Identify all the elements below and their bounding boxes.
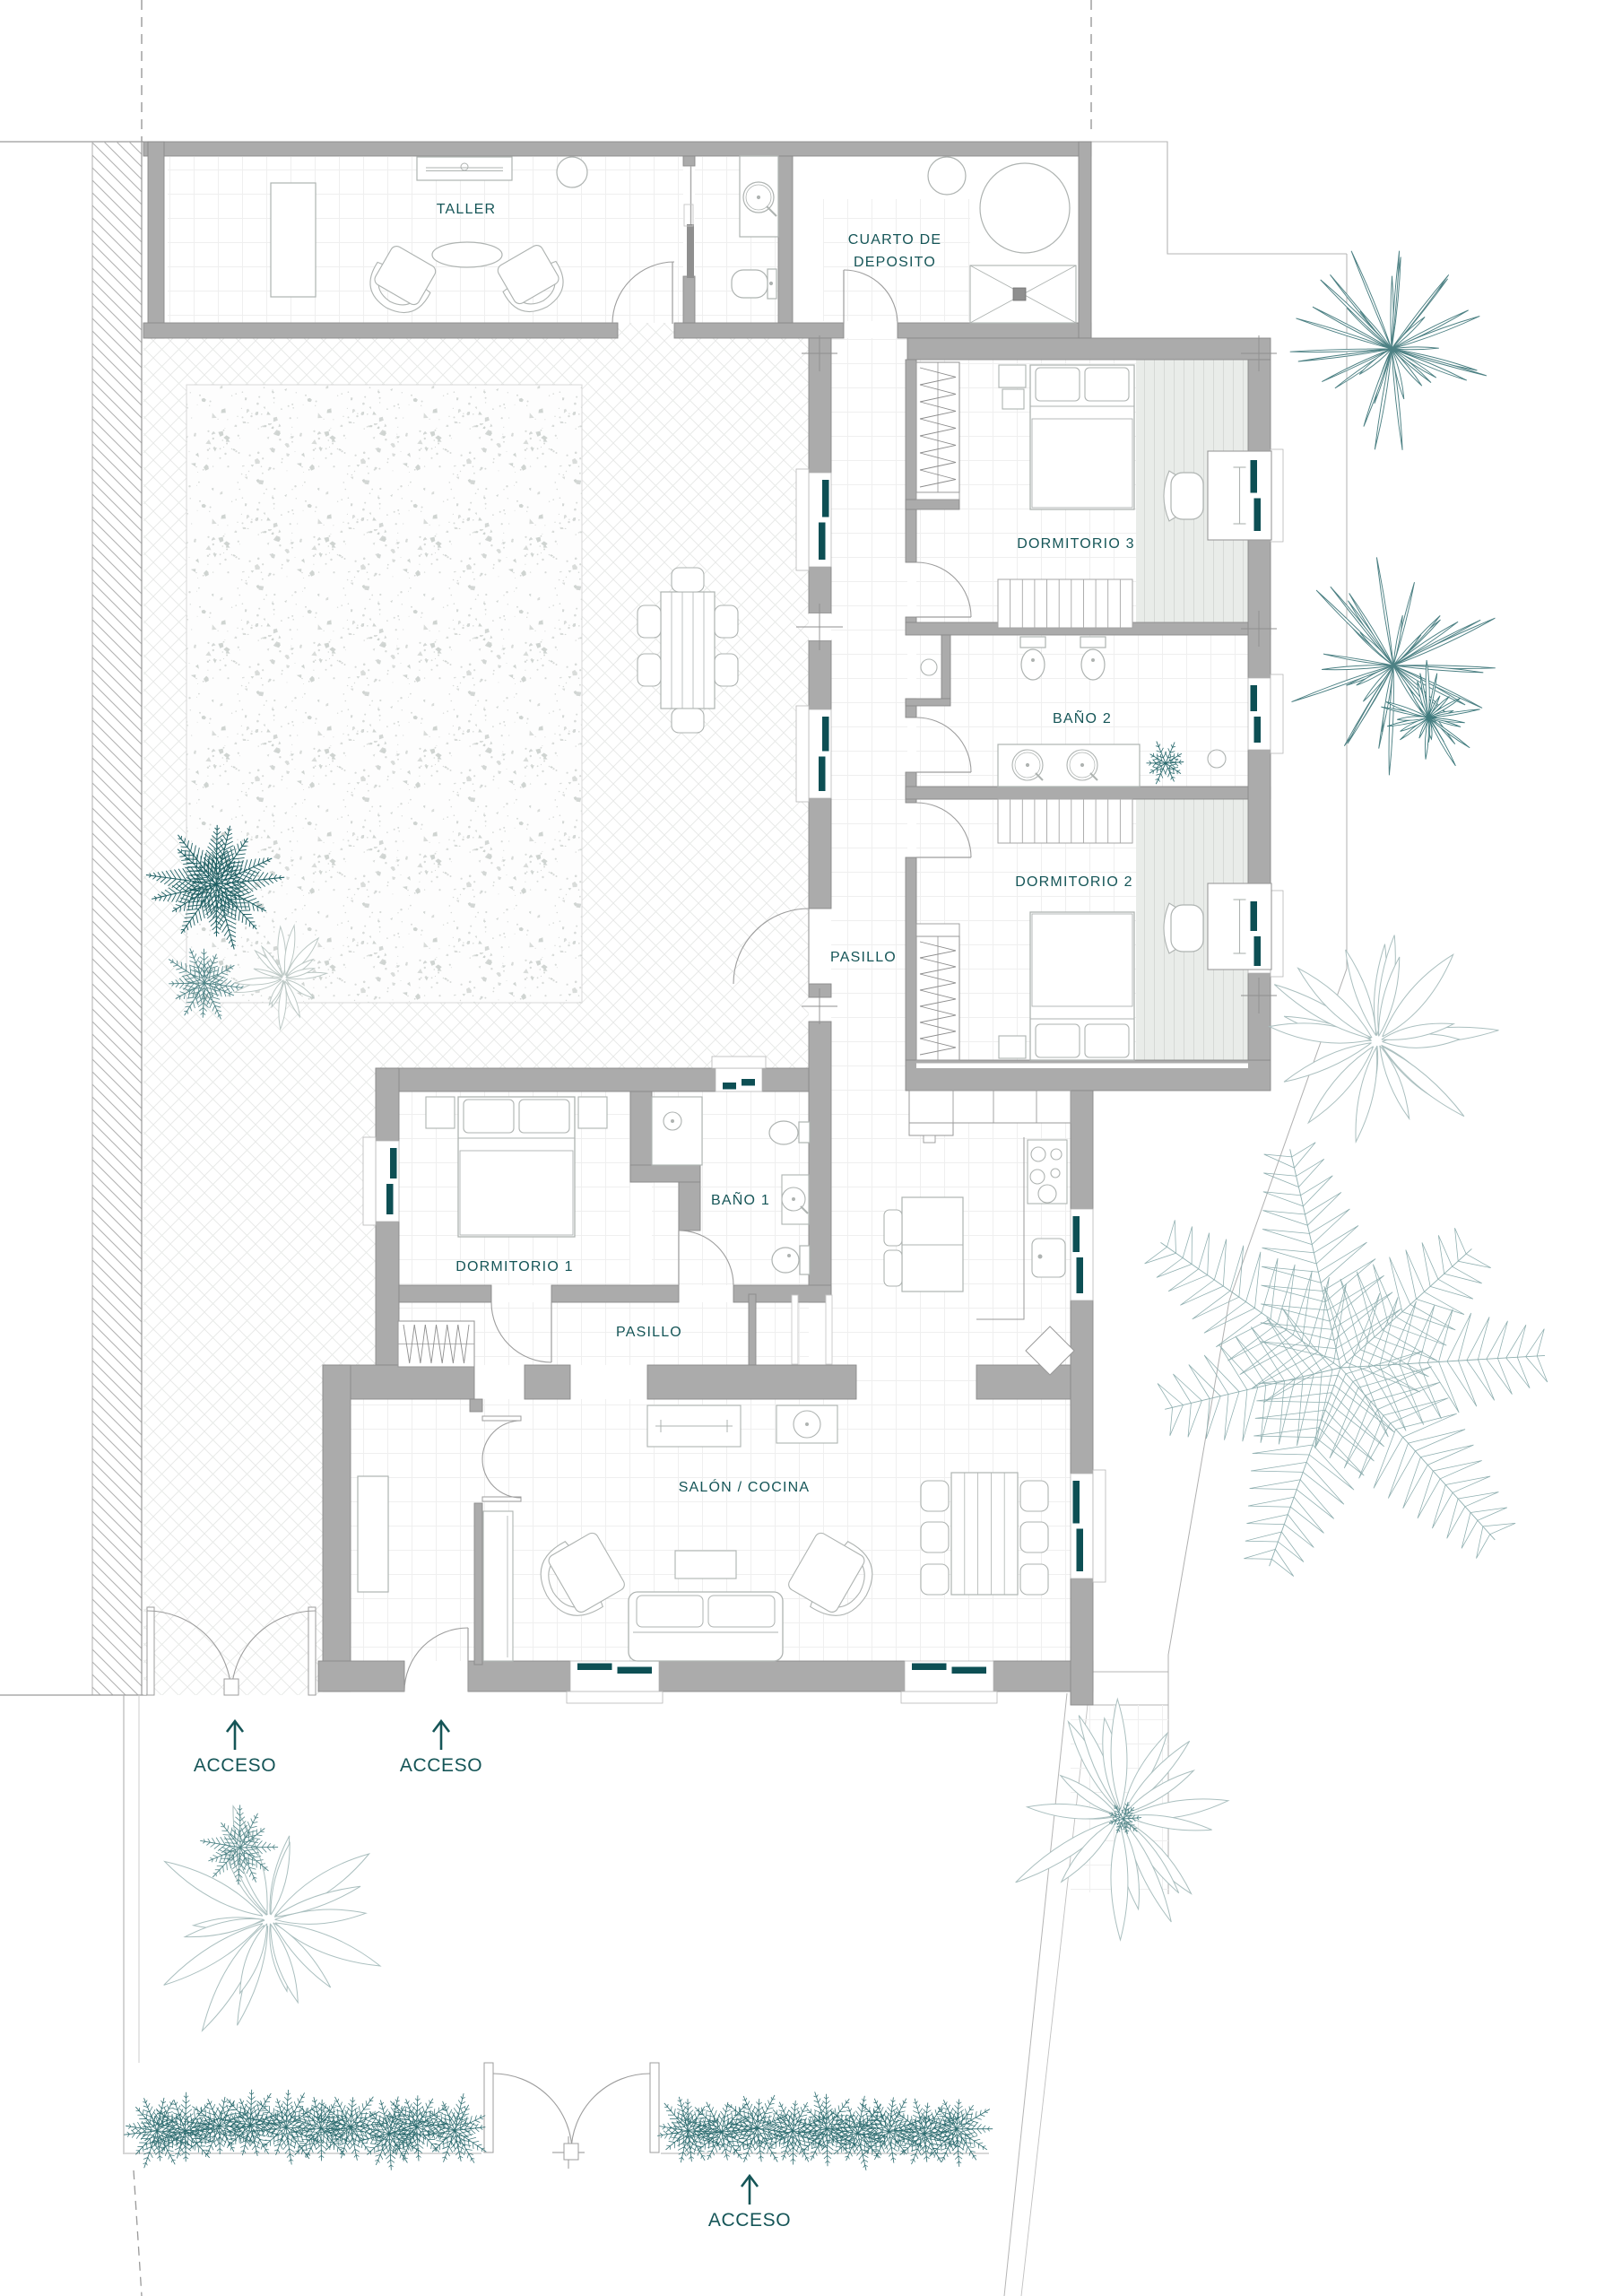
svg-text:TALLER: TALLER xyxy=(437,202,496,217)
svg-text:DORMITORIO 2: DORMITORIO 2 xyxy=(1015,874,1132,890)
svg-text:PASILLO: PASILLO xyxy=(616,1325,682,1340)
svg-text:ACCESO: ACCESO xyxy=(194,1755,276,1776)
svg-text:DORMITORIO 1: DORMITORIO 1 xyxy=(455,1259,573,1274)
svg-text:BAÑO 2: BAÑO 2 xyxy=(1053,709,1112,726)
svg-text:DEPOSITO: DEPOSITO xyxy=(854,255,936,270)
svg-text:PASILLO: PASILLO xyxy=(830,950,897,965)
svg-text:ACCESO: ACCESO xyxy=(708,2210,791,2231)
svg-text:BAÑO 1: BAÑO 1 xyxy=(711,1190,770,1208)
svg-text:SALÓN / COCINA: SALÓN / COCINA xyxy=(679,1478,811,1495)
svg-text:ACCESO: ACCESO xyxy=(400,1755,482,1776)
svg-text:DORMITORIO 3: DORMITORIO 3 xyxy=(1017,536,1134,552)
svg-text:CUARTO DE: CUARTO DE xyxy=(848,232,941,248)
